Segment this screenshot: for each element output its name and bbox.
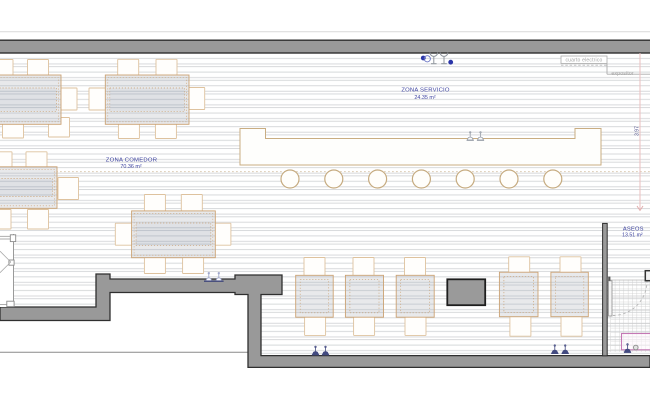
svg-text:cuarto electrico: cuarto electrico <box>565 58 602 64</box>
svg-text:70.36 m²: 70.36 m² <box>120 164 141 170</box>
svg-text:24.35 m²: 24.35 m² <box>414 95 435 101</box>
svg-text:expositor: expositor <box>611 71 633 77</box>
svg-text:ZONA SERVICIO: ZONA SERVICIO <box>401 87 450 93</box>
svg-text:13.51 m²: 13.51 m² <box>622 233 643 239</box>
svg-text:ZONA COMEDOR: ZONA COMEDOR <box>106 157 157 163</box>
svg-text:ASEOS: ASEOS <box>623 226 644 232</box>
svg-text:3.97: 3.97 <box>635 126 641 136</box>
